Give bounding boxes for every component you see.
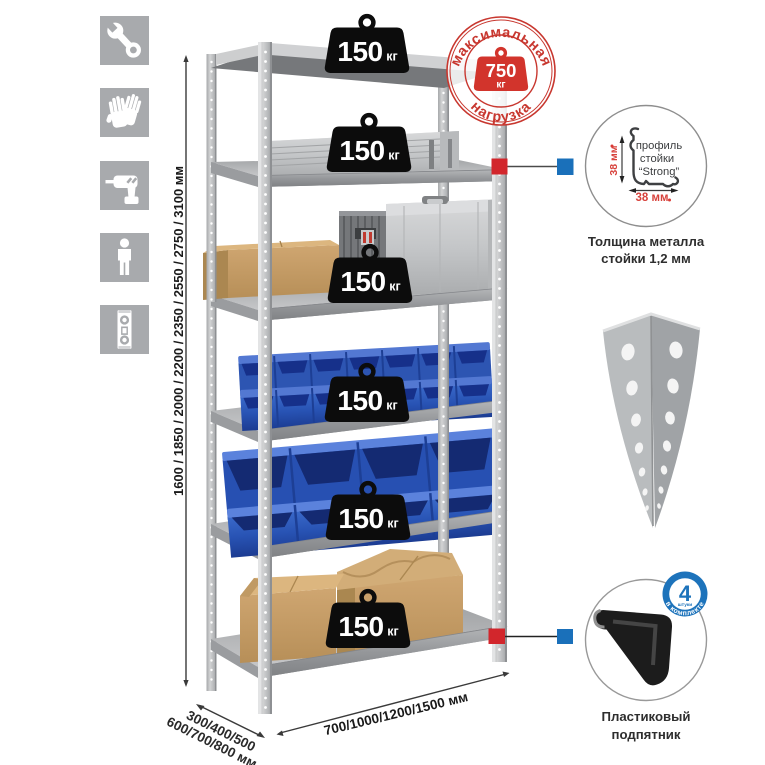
- svg-text:38 мм: 38 мм: [635, 192, 668, 204]
- svg-text:Пластиковый: Пластиковый: [601, 709, 690, 724]
- svg-text:профиль: профиль: [636, 140, 682, 152]
- svg-text:стойки: стойки: [640, 153, 674, 165]
- svg-text:стойки 1,2 мм: стойки 1,2 мм: [601, 251, 691, 266]
- svg-text:Толщина металла: Толщина металла: [588, 234, 705, 249]
- svg-text:“Strong”: “Strong”: [639, 166, 680, 178]
- svg-text:750: 750: [486, 60, 517, 81]
- svg-text:1600 / 1850 / 2000 / 2200 / 23: 1600 / 1850 / 2000 / 2200 / 2350 / 2550 …: [171, 166, 186, 496]
- svg-text:38 мм: 38 мм: [608, 145, 620, 175]
- svg-text:подпятник: подпятник: [611, 727, 680, 742]
- svg-text:кг: кг: [496, 80, 505, 91]
- svg-text:штуки: штуки: [678, 603, 693, 608]
